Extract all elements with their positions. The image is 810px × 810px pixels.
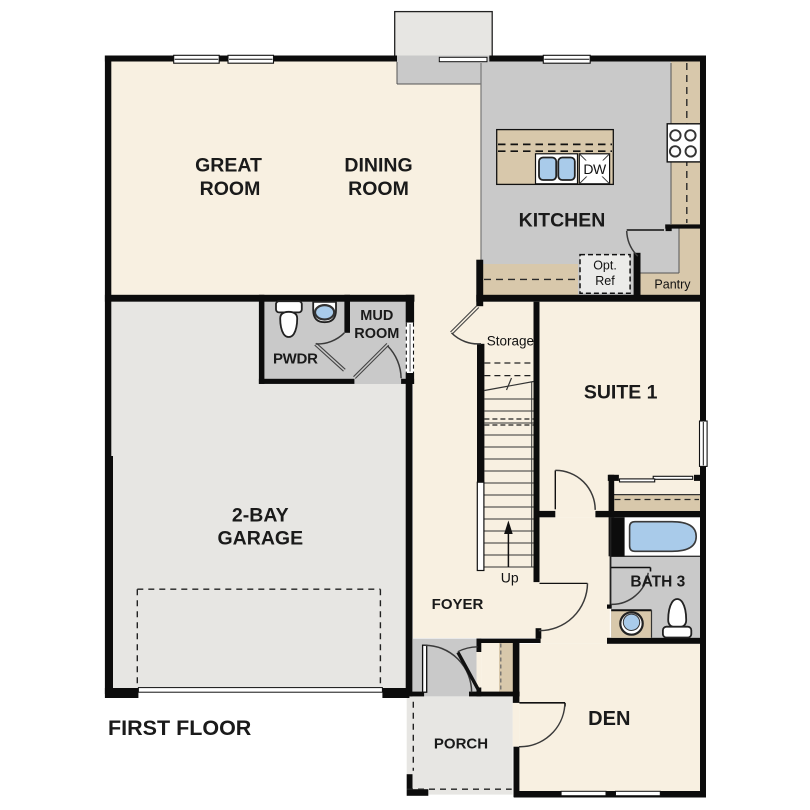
- svg-text:PWDR: PWDR: [273, 351, 318, 368]
- svg-text:PORCH: PORCH: [434, 736, 488, 753]
- svg-text:SUITE 1: SUITE 1: [584, 382, 658, 404]
- svg-text:ROOM: ROOM: [354, 326, 399, 342]
- svg-text:ROOM: ROOM: [200, 178, 261, 200]
- svg-text:Pantry: Pantry: [654, 278, 691, 292]
- svg-text:MUD: MUD: [360, 308, 393, 324]
- svg-text:Ref: Ref: [595, 274, 615, 288]
- svg-text:ROOM: ROOM: [348, 178, 409, 200]
- svg-text:GREAT: GREAT: [195, 155, 262, 177]
- svg-text:Up: Up: [501, 570, 519, 586]
- svg-text:2-BAY: 2-BAY: [232, 505, 289, 527]
- svg-text:FIRST FLOOR: FIRST FLOOR: [108, 716, 252, 740]
- svg-text:Storage: Storage: [487, 333, 534, 348]
- svg-text:BATH 3: BATH 3: [630, 573, 685, 590]
- svg-text:DW: DW: [583, 161, 607, 177]
- svg-text:DINING: DINING: [344, 155, 412, 177]
- svg-text:DEN: DEN: [588, 708, 630, 730]
- svg-text:KITCHEN: KITCHEN: [519, 210, 606, 232]
- svg-text:Opt.: Opt.: [593, 259, 617, 273]
- svg-text:GARAGE: GARAGE: [218, 527, 304, 549]
- svg-text:FOYER: FOYER: [432, 596, 484, 613]
